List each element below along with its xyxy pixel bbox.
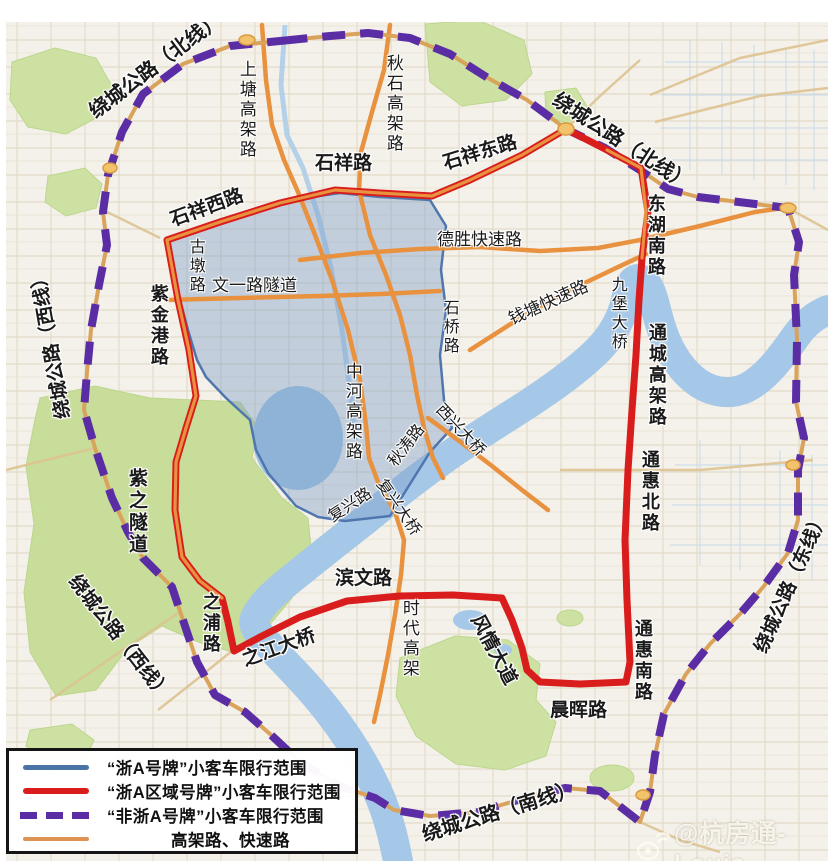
road-label-qiushi-viaduct: 秋石高架路 (384, 54, 402, 154)
legend: “浙A号牌”小客车限行范围 “浙A区域号牌”小客车限行范围 “非浙A号牌”小客车… (6, 748, 358, 854)
road-label-tongcheng-viaduct: 通城高架路 (647, 323, 666, 428)
road-label-donghu-south: 东湖南路 (646, 194, 665, 278)
road-label-tonghui-south: 通惠南路 (633, 619, 652, 703)
road-label-chenhui: 晨晖路 (550, 701, 607, 721)
road-label-zijingang: 紫金港路 (149, 284, 168, 368)
road-label-shiqiao: 石桥路 (440, 299, 457, 356)
legend-row-non-zhea: “非浙A号牌”小客车限行范围 (19, 803, 349, 827)
road-label-zhipu: 之浦路 (201, 592, 220, 655)
map-area: 绕城公路（北线）绕城公路（北线）绕城公路（西线）绕城公路（西线）绕城公路（东线）… (0, 0, 828, 861)
left-margin (0, 0, 6, 861)
weibo-icon (636, 832, 670, 861)
road-label-wenyi-tunnel: 文一路隧道 (212, 277, 297, 295)
road-label-binwen: 滨文路 (335, 569, 392, 589)
road-label-zizhi-tunnel: 紫之隧道 (126, 468, 146, 556)
blue-line-swatch (19, 765, 93, 770)
road-label-tonghui-north: 通惠北路 (640, 450, 659, 534)
road-label-shangtang-viaduct: 上塘高架路 (237, 60, 255, 160)
red-line-swatch (19, 788, 93, 794)
watermark: @杭房通-Louis (636, 814, 828, 861)
purple-dashed-swatch (19, 812, 93, 819)
road-label-zhonghe-viaduct: 中河高架路 (343, 362, 361, 462)
legend-label: “浙A号牌”小客车限行范围 (107, 755, 307, 779)
road-label-gudun: 古墩路 (186, 238, 203, 295)
road-label-desheng-expwy: 德胜快速路 (437, 231, 522, 249)
legend-label: “浙A区域号牌”小客车限行范围 (107, 779, 341, 803)
legend-label: “非浙A号牌”小客车限行范围 (107, 803, 324, 827)
road-label-shidai-viaduct: 时代高架 (400, 599, 418, 679)
legend-row-zhea-regional: “浙A区域号牌”小客车限行范围 (19, 779, 349, 803)
legend-row-zhea-plate: “浙A号牌”小客车限行范围 (19, 755, 349, 779)
map-canvas: 绕城公路（北线）绕城公路（北线）绕城公路（西线）绕城公路（西线）绕城公路（东线）… (0, 0, 828, 861)
legend-row-expressway: 高架路、快速路 (19, 827, 349, 851)
road-label-jiubao-bridge: 九堡大桥 (608, 276, 625, 352)
top-margin (0, 0, 828, 22)
orange-line-swatch (19, 837, 93, 841)
watermark-handle: @杭房通-Louis (674, 814, 828, 861)
legend-label: 高架路、快速路 (171, 827, 290, 851)
road-label-shixiang: 石祥路 (315, 154, 372, 174)
